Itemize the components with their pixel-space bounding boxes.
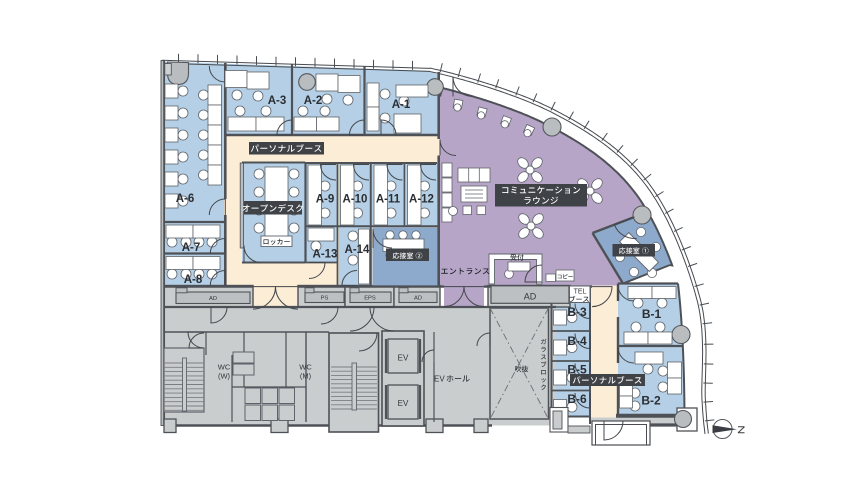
svg-text:A-13: A-13 — [313, 249, 338, 261]
svg-text:A-3: A-3 — [268, 95, 287, 107]
svg-text:AD: AD — [524, 292, 537, 302]
svg-text:A-11: A-11 — [376, 194, 401, 206]
svg-text:B-2: B-2 — [641, 394, 661, 408]
svg-text:A-10: A-10 — [343, 194, 368, 206]
svg-text:A-14: A-14 — [345, 244, 371, 256]
svg-text:AD: AD — [414, 296, 422, 302]
svg-text:EV: EV — [398, 399, 409, 408]
svg-text:(M): (M) — [300, 372, 312, 381]
svg-text:A-6: A-6 — [176, 193, 195, 205]
svg-text:EPS: EPS — [364, 296, 376, 302]
svg-text:EV: EV — [434, 375, 445, 384]
svg-text:B-1: B-1 — [642, 307, 662, 321]
svg-text:A-9: A-9 — [316, 194, 335, 206]
svg-text:TEL: TEL — [574, 289, 587, 296]
svg-text:WC: WC — [299, 363, 312, 372]
svg-text:PS: PS — [321, 296, 329, 302]
svg-text:(W): (W) — [218, 372, 231, 381]
svg-text:A-2: A-2 — [304, 95, 323, 107]
svg-text:B-6: B-6 — [567, 392, 587, 406]
svg-text:EV: EV — [398, 354, 409, 363]
svg-text:A-1: A-1 — [392, 99, 411, 111]
svg-text:AD: AD — [209, 296, 217, 302]
svg-text:A-12: A-12 — [409, 194, 434, 206]
svg-text:A-8: A-8 — [184, 274, 203, 286]
svg-text:A-7: A-7 — [182, 242, 201, 254]
svg-text:WC: WC — [218, 363, 231, 372]
